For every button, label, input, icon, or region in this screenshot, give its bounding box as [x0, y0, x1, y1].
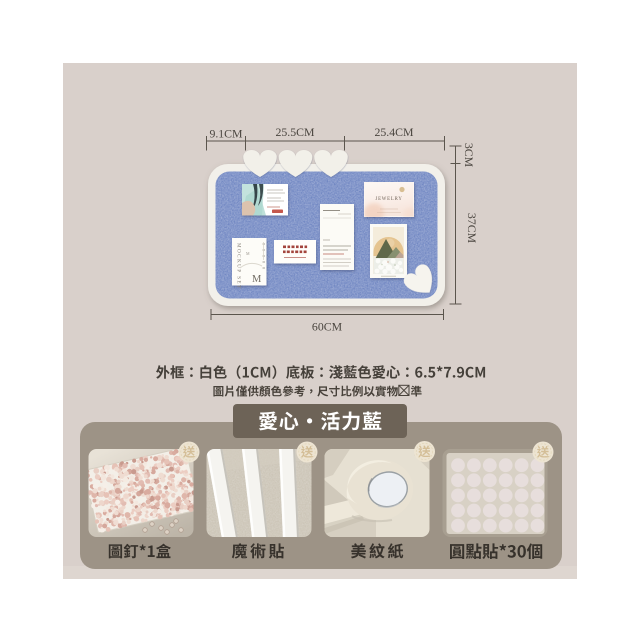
svg-text:M: M [246, 251, 250, 256]
svg-text:25.5CM: 25.5CM [275, 125, 315, 139]
svg-text:37CM: 37CM [465, 213, 479, 244]
svg-text:3CM: 3CM [462, 143, 476, 168]
svg-text:60CM: 60CM [312, 320, 343, 334]
svg-text:M: M [252, 274, 262, 285]
svg-text:MOCKUP SET: MOCKUP SET [236, 243, 242, 290]
svg-text:25.4CM: 25.4CM [374, 125, 414, 139]
svg-text:9.1CM: 9.1CM [209, 127, 243, 141]
svg-text:JEWELRY: JEWELRY [375, 197, 402, 202]
